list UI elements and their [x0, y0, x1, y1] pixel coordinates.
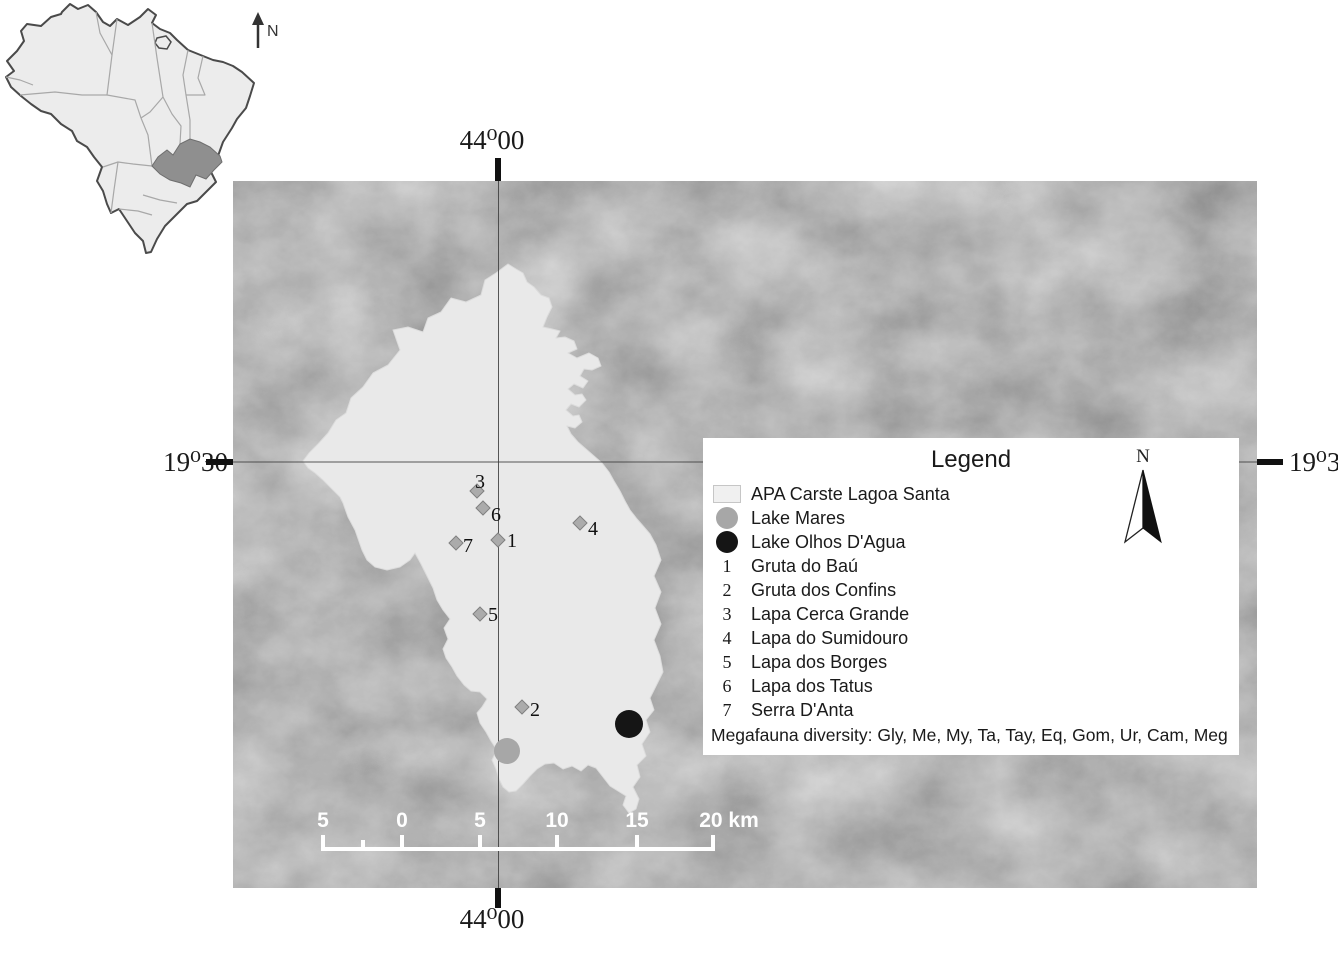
legend-item: 5Lapa dos Borges — [709, 650, 950, 674]
legend-item-label: Lake Mares — [745, 508, 845, 529]
brazil-outline — [6, 4, 254, 253]
legend-item: 2Gruta dos Confins — [709, 578, 950, 602]
legend-north-arrow: N — [1121, 442, 1165, 546]
legend-north-label: N — [1136, 446, 1150, 467]
legend-item-label: Lapa dos Tatus — [745, 676, 873, 697]
scale-label: 0 — [396, 809, 408, 832]
site-number: 3 — [723, 604, 732, 625]
legend-item-label: Lake Olhos D'Agua — [745, 532, 906, 553]
lake-swatch — [716, 531, 738, 553]
graticule-tick-top — [495, 158, 501, 183]
site-number: 4 — [723, 628, 732, 649]
figure: N 44⁰00 44⁰00 19⁰30 19⁰30 — [0, 0, 1338, 956]
site-label: 7 — [463, 535, 473, 557]
legend-item: Lake Mares — [709, 506, 950, 530]
legend-item: 1Gruta do Baú — [709, 554, 950, 578]
site-label: 2 — [530, 699, 540, 721]
brazil-inset-map — [0, 0, 258, 254]
site-label: 3 — [475, 471, 485, 493]
scale-label: 10 — [545, 809, 568, 832]
scale-label: 5 — [474, 809, 486, 832]
legend-item: 3Lapa Cerca Grande — [709, 602, 950, 626]
site-label: 1 — [507, 530, 517, 552]
inset-north-label: N — [267, 23, 279, 40]
site-number: 1 — [723, 556, 732, 577]
coordinate-label-top: 44⁰00 — [449, 124, 535, 156]
lake-swatch — [716, 507, 738, 529]
site-label: 4 — [588, 518, 598, 540]
lake-marker — [494, 738, 520, 764]
inset-north-arrow: N — [246, 8, 288, 54]
legend-item-label: Gruta dos Confins — [745, 580, 896, 601]
map-legend: Legend N APA Carste Lagoa SantaLake Mare… — [703, 438, 1239, 755]
graticule-tick-left — [206, 459, 236, 465]
coordinate-label-bottom: 44⁰00 — [449, 903, 535, 935]
scale-label: 15 — [625, 809, 649, 832]
site-number: 5 — [723, 652, 732, 673]
site-number: 2 — [723, 580, 732, 601]
site-number: 7 — [723, 700, 732, 721]
site-number: 6 — [723, 676, 732, 697]
legend-item: Lake Olhos D'Agua — [709, 530, 950, 554]
legend-item-label: APA Carste Lagoa Santa — [745, 484, 950, 505]
legend-item-label: Serra D'Anta — [745, 700, 853, 721]
island-outline — [155, 36, 171, 49]
scale-label: 5 — [317, 809, 329, 832]
satellite-map: 1234567 5 0 5 10 15 20 km Legend — [233, 181, 1257, 888]
coordinate-label-right: 19⁰30 — [1289, 446, 1338, 478]
legend-item: APA Carste Lagoa Santa — [709, 482, 950, 506]
legend-item: 7Serra D'Anta — [709, 698, 950, 722]
legend-footnote: Megafauna diversity: Gly, Me, My, Ta, Ta… — [711, 725, 1228, 746]
legend-item-label: Lapa do Sumidouro — [745, 628, 908, 649]
legend-item: 6Lapa dos Tatus — [709, 674, 950, 698]
legend-item: 4Lapa do Sumidouro — [709, 626, 950, 650]
legend-item-list: APA Carste Lagoa SantaLake MaresLake Olh… — [709, 482, 950, 722]
legend-item-label: Lapa Cerca Grande — [745, 604, 909, 625]
legend-item-label: Gruta do Baú — [745, 556, 858, 577]
area-swatch — [713, 485, 741, 503]
legend-item-label: Lapa dos Borges — [745, 652, 887, 673]
lake-marker — [615, 710, 643, 738]
site-label: 6 — [491, 504, 501, 526]
scale-label: 20 km — [699, 809, 759, 832]
site-label: 5 — [488, 604, 498, 626]
